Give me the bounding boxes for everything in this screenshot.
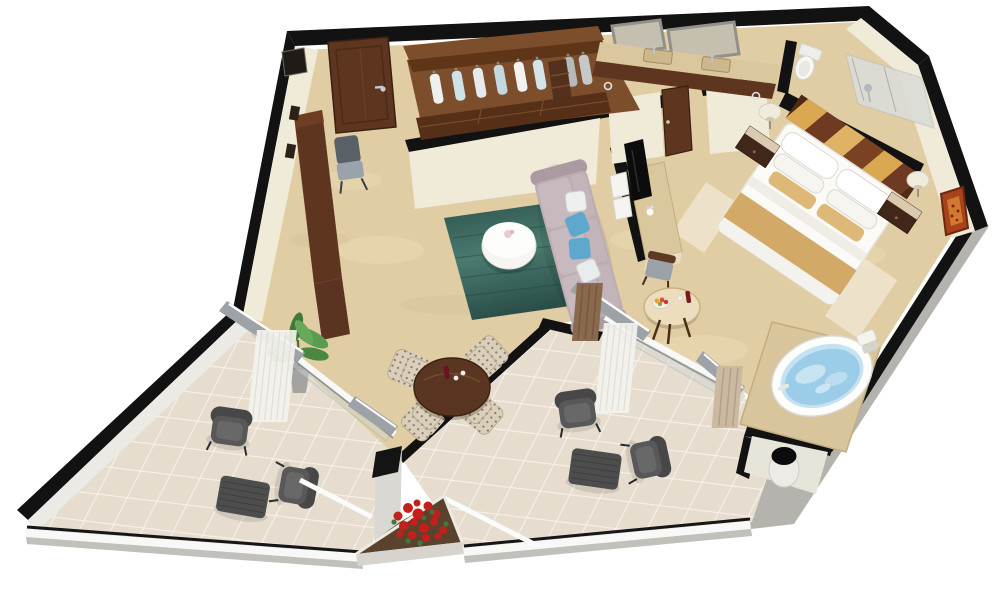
drape-curtain-beige <box>712 366 743 428</box>
entry-door <box>328 37 396 133</box>
round-coffee-table <box>482 222 536 274</box>
drape-curtain-brown <box>572 283 603 341</box>
dining-table <box>414 358 490 416</box>
outdoor-column-bin <box>769 447 799 487</box>
entry-wall-panel <box>282 48 307 76</box>
wall-art <box>941 187 968 235</box>
pocket-door <box>662 86 692 156</box>
floor-plan-rendering <box>0 0 1000 609</box>
console-vase <box>647 209 654 216</box>
patterned-pillow <box>565 190 587 212</box>
floor-plan-stage <box>0 0 1000 609</box>
mini-shelf <box>613 196 632 220</box>
mini-shelf <box>610 172 629 198</box>
bin-opening <box>772 447 797 465</box>
